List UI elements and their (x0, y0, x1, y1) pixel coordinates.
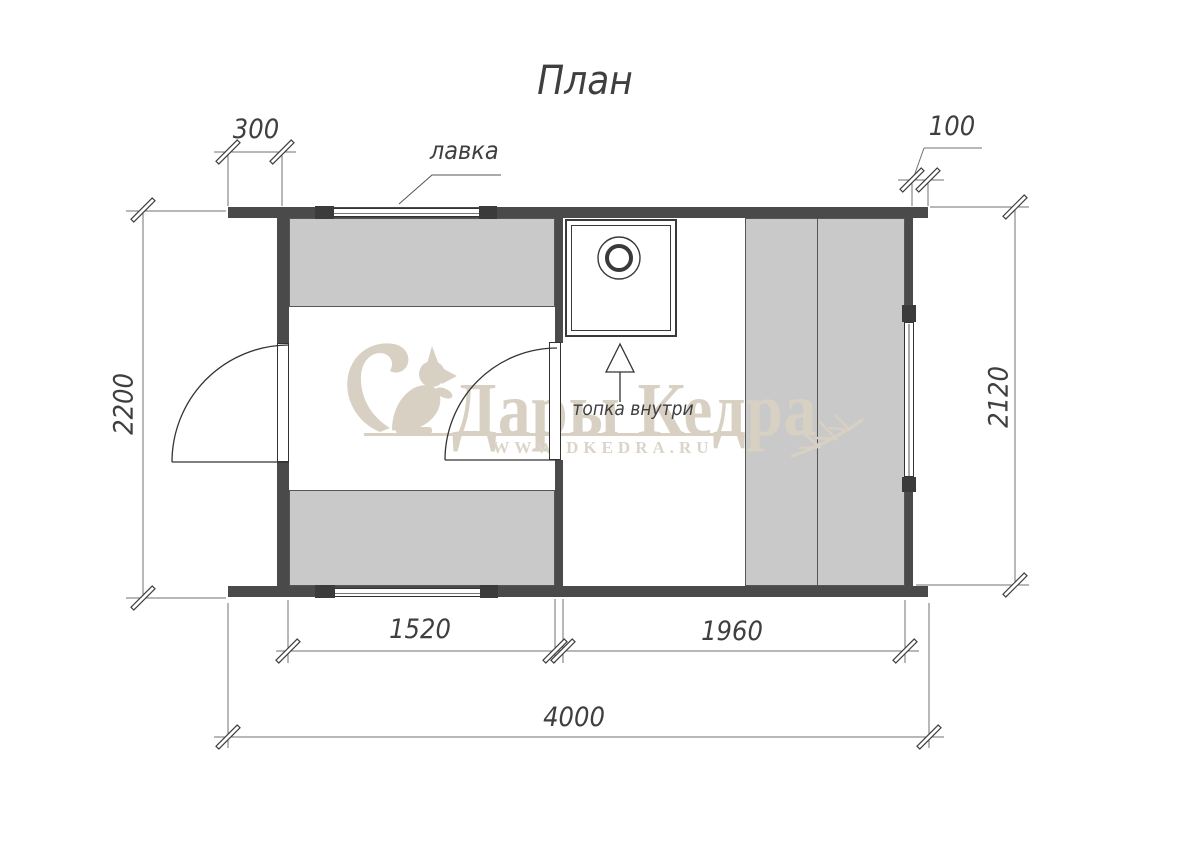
dim-right-overhang: 100 (925, 111, 979, 142)
stove-note-label: топка внутри (572, 398, 687, 420)
page-title: План (513, 58, 657, 104)
bench-callout-label: лавка (430, 136, 499, 165)
dim-left-overhang: 300 (229, 114, 283, 145)
dim-total-width: 4000 (538, 702, 610, 733)
floor-plan-canvas: Дары Кедра WWW.DKEDRA.RU (0, 0, 1200, 848)
text-layer: План лавка топка внутри 300 100 2200 212… (0, 0, 1200, 848)
dim-room-right-width: 1960 (696, 616, 768, 647)
dim-right-height: 2120 (984, 366, 1015, 428)
dim-room-left-width: 1520 (384, 614, 456, 645)
dim-left-height: 2200 (109, 373, 140, 435)
